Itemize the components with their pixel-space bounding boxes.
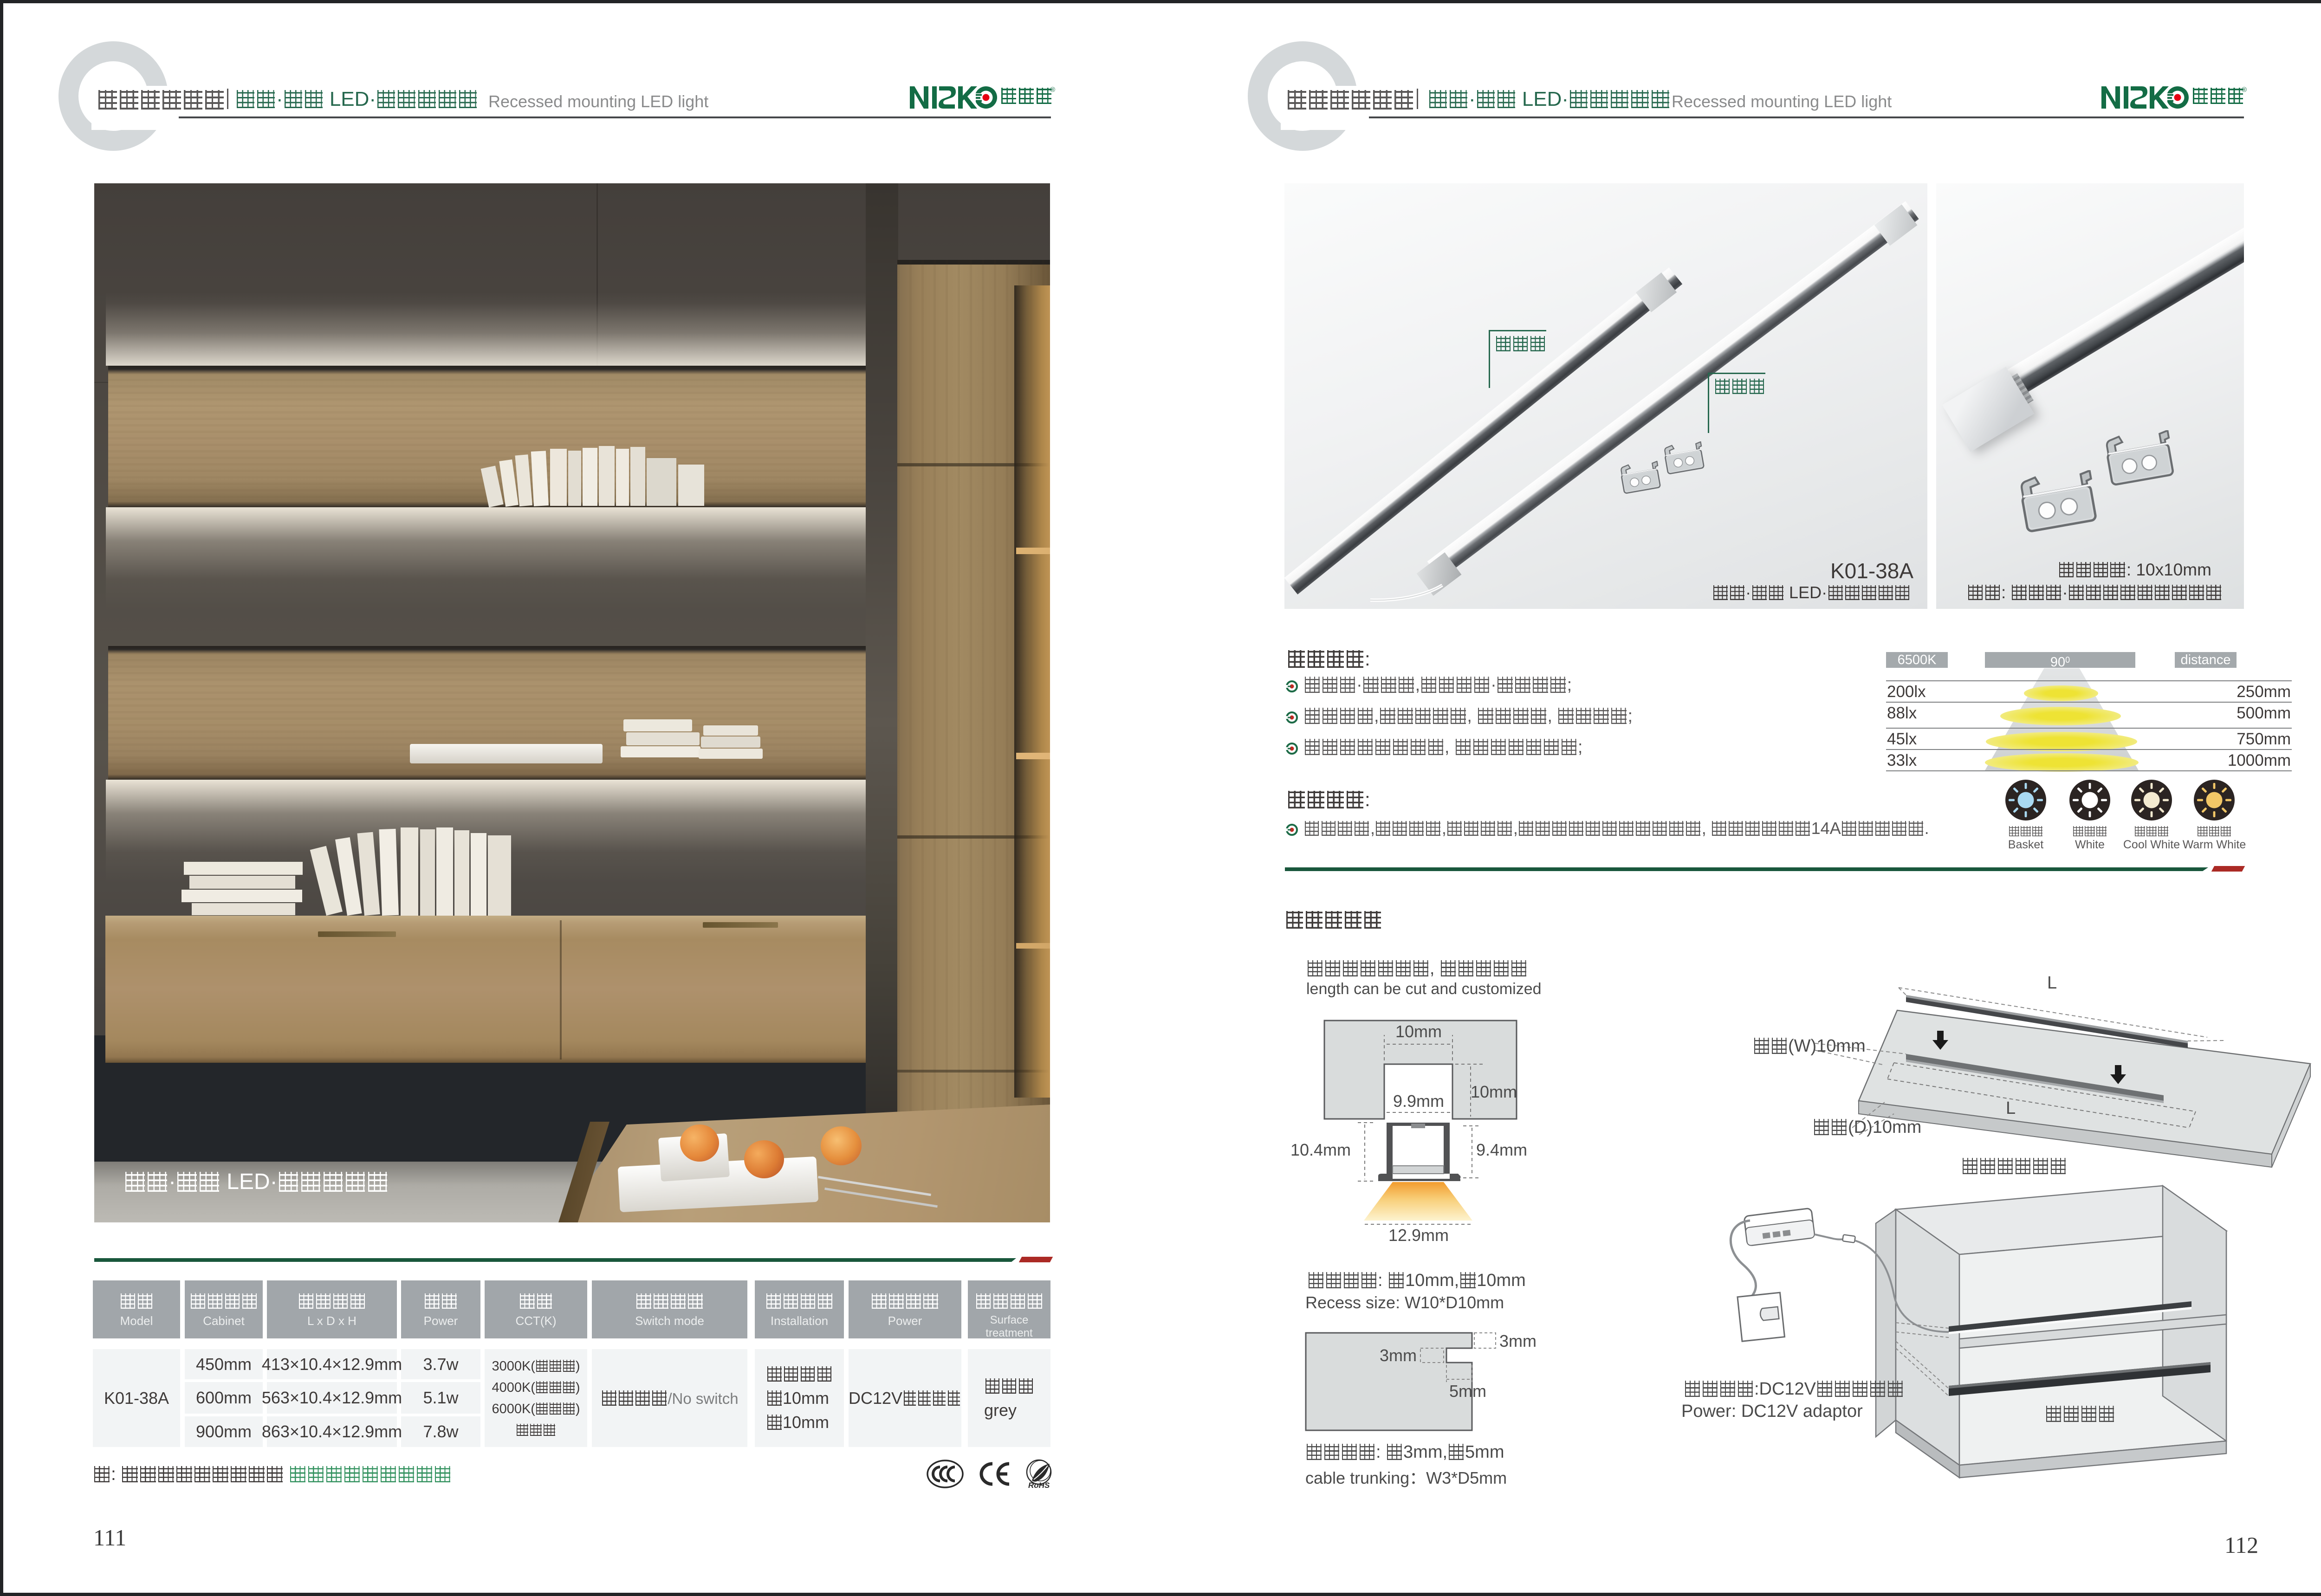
svg-text:9.9mm: 9.9mm bbox=[1393, 1092, 1444, 1111]
svg-text:12.9mm: 12.9mm bbox=[1388, 1226, 1449, 1244]
svg-text:RoHS: RoHS bbox=[1028, 1481, 1050, 1490]
svg-text:10.4mm: 10.4mm bbox=[1290, 1140, 1351, 1159]
svg-text:3mm: 3mm bbox=[1380, 1346, 1417, 1365]
svg-text:10mm: 10mm bbox=[1395, 1022, 1442, 1041]
svg-text:3mm: 3mm bbox=[1499, 1331, 1537, 1350]
svg-text:L: L bbox=[2047, 975, 2057, 993]
svg-text:9.4mm: 9.4mm bbox=[1476, 1140, 1527, 1159]
svg-text:10mm: 10mm bbox=[1471, 1082, 1517, 1101]
svg-text:L: L bbox=[2006, 1098, 2016, 1118]
svg-text:5mm: 5mm bbox=[1449, 1382, 1486, 1401]
